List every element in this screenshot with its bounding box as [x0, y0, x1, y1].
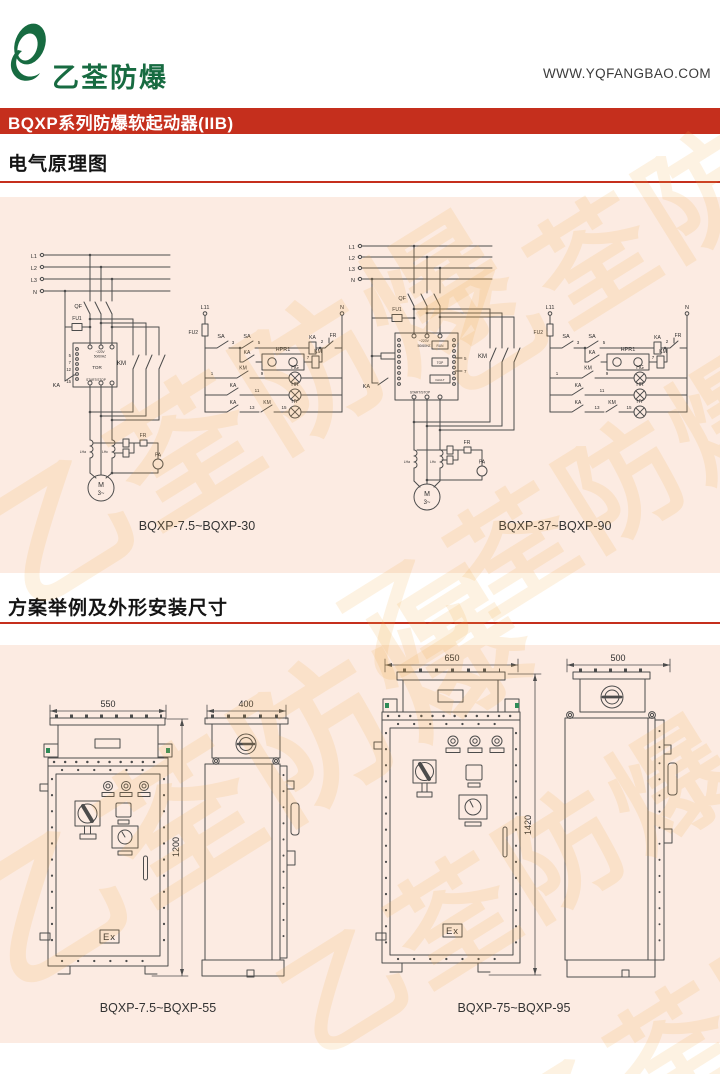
label-fr: FR [464, 440, 471, 446]
label-15: 15 [281, 405, 287, 410]
label-terminal-12: 12 [66, 367, 71, 372]
label-qf: QF [74, 304, 82, 310]
label-13: 13 [594, 405, 600, 410]
schematic-caption-small: BQXP-7.5~BQXP-30 [139, 519, 255, 533]
label-l11: L11 [201, 305, 210, 311]
label-freq: 50/60HZ [94, 355, 106, 359]
control-circuit-small: L11 N FU2 SA 3 SA 5 KA 2 FR KA HPR1 [189, 305, 344, 418]
control-circuit-large: L11 N FU2 SA 3 SA 5 KA 2 FR KA HPR1 [534, 305, 689, 418]
label-l11: L11 [546, 305, 555, 311]
label-km: KM [584, 366, 592, 372]
label-n: N [351, 278, 355, 284]
label-hpr1: HPR1 [621, 347, 636, 353]
label-volt: ~220V [95, 350, 105, 354]
label-l1: L1 [31, 254, 37, 260]
label-fu2: FU2 [534, 330, 544, 336]
dim-400: 400 [238, 699, 253, 709]
label-1: 1 [211, 371, 214, 376]
label-terminal-7: 7 [69, 360, 72, 365]
label-hr: HR [636, 382, 644, 388]
label-n: N [685, 305, 689, 311]
label-km: KM [263, 400, 271, 406]
label-fu1: FU1 [392, 307, 402, 313]
label-sa: SA [217, 334, 225, 340]
label-ka: KA [363, 384, 371, 390]
label-n: N [33, 290, 37, 296]
label-lha: LHa [80, 450, 86, 454]
label-hr: HR [291, 382, 299, 388]
ex-mark: Ex [103, 932, 116, 943]
cabinet-small-side-view: 400 [202, 699, 299, 977]
ex-mark: Ex [446, 926, 459, 937]
label-l1: L1 [349, 245, 355, 251]
label-motor: M [98, 482, 104, 489]
dim-550: 550 [100, 699, 115, 709]
schematic-caption-large: BQXP-37~BQXP-90 [499, 519, 612, 533]
label-km: KM [239, 366, 247, 372]
cabinet-large-front-view: 650 [374, 653, 541, 975]
label-11: 11 [600, 388, 605, 393]
label-ka: KA [309, 335, 316, 341]
label-hpr1: HPR1 [276, 347, 291, 353]
dim-650: 650 [444, 653, 459, 663]
section-divider-2 [0, 622, 720, 624]
label-qf: QF [398, 296, 406, 302]
label-hy: HY [292, 399, 300, 405]
label-km: KM [659, 349, 667, 355]
brand-name: 乙荃防爆 [52, 56, 168, 95]
label-2: 2 [666, 339, 669, 344]
label-7: 7 [652, 355, 655, 360]
label-lha: LHa [404, 460, 410, 464]
label-motor-phase: 3~ [98, 491, 105, 497]
label-5: 5 [603, 340, 606, 345]
label-5: 5 [464, 356, 467, 361]
dim-500: 500 [610, 653, 625, 663]
label-pa: PA [479, 460, 486, 466]
label-fr: FR [140, 433, 147, 439]
label-sa: SA [243, 334, 251, 340]
drawing-caption-small: BQXP-7.5~BQXP-55 [100, 1001, 216, 1015]
label-pa: PA [155, 453, 162, 459]
power-circuit-large: L1 L2 L3 N QF KM [349, 244, 520, 510]
label-lhc: LHc [430, 460, 436, 464]
label-ka: KA [230, 383, 237, 389]
label-top: TOP [437, 361, 444, 365]
label-1: 1 [556, 371, 559, 376]
label-l2: L2 [31, 266, 37, 272]
label-hg: HG [636, 365, 644, 371]
label-freq: 50/60HZ [417, 344, 430, 348]
label-lhc: LHc [102, 450, 108, 454]
label-ka: KA [575, 383, 582, 389]
catalog-page: 乙荃防爆 WWW.YQFANGBAO.COM BQXP系列防爆软起动器(IIB)… [0, 0, 720, 1074]
page-title: BQXP系列防爆软起动器(IIB) [0, 109, 234, 134]
label-motor: M [424, 491, 430, 498]
label-13: 13 [249, 405, 255, 410]
dim-1420: 1420 [523, 815, 533, 835]
label-start-stop: START/STOP [410, 391, 431, 395]
label-3: 3 [232, 340, 235, 345]
label-ka: KA [589, 350, 596, 356]
label-hy: HY [637, 399, 645, 405]
label-ka: KA [230, 400, 237, 406]
brand-logo-icon [8, 20, 48, 84]
cabinet-large-side-view: 500 [565, 653, 677, 977]
label-ka: KA [575, 400, 582, 406]
label-7: 7 [464, 369, 467, 374]
label-run: RUN [437, 344, 445, 348]
label-5: 5 [258, 340, 261, 345]
label-fault: FAULT [435, 378, 444, 382]
label-volt: ~220V [419, 339, 430, 343]
label-l2: L2 [349, 256, 355, 262]
label-ka: KA [244, 350, 251, 356]
label-fu2: FU2 [189, 330, 199, 336]
label-7: 7 [307, 355, 310, 360]
label-km: KM [608, 400, 616, 406]
label-motor-phase: 3~ [424, 500, 431, 506]
schematic-diagram: L1 L2 L3 N QF FU1 KA [0, 197, 720, 573]
label-km: KM [314, 349, 322, 355]
label-l3: L3 [349, 267, 355, 273]
label-fu1: FU1 [72, 316, 82, 322]
page-title-bar: BQXP系列防爆软起动器(IIB) [0, 108, 720, 134]
dim-1200: 1200 [171, 837, 181, 857]
power-circuit-small: L1 L2 L3 N QF FU1 KA [31, 253, 170, 501]
label-11: 11 [255, 388, 260, 393]
drawing-caption-large: BQXP-75~BQXP-95 [458, 1001, 571, 1015]
label-ka: KA [654, 335, 661, 341]
label-tor: TOR [92, 365, 102, 370]
dimension-drawings: 550 [0, 645, 720, 1043]
label-fr: FR [675, 333, 682, 339]
section-divider-1 [0, 181, 720, 183]
label-hg: HG [291, 365, 299, 371]
drawings-panel: 550 [0, 645, 720, 1043]
website-url: WWW.YQFANGBAO.COM [543, 66, 711, 81]
label-n: N [340, 305, 344, 311]
label-start-stop: START/STOP [86, 378, 106, 382]
cabinet-small-front-view: 550 [40, 699, 188, 976]
label-sa: SA [562, 334, 570, 340]
section-title-dimensions: 方案举例及外形安装尺寸 [8, 593, 228, 620]
label-9: 9 [606, 371, 609, 376]
schematic-panel: L1 L2 L3 N QF FU1 KA [0, 197, 720, 573]
label-sa: SA [588, 334, 596, 340]
label-fr: FR [330, 333, 337, 339]
label-km: KM [117, 361, 126, 367]
label-3: 3 [577, 340, 580, 345]
label-ka: KA [53, 383, 61, 389]
label-15: 15 [626, 405, 632, 410]
label-2: 2 [321, 339, 324, 344]
label-km: KM [478, 354, 487, 360]
section-title-schematic: 电气原理图 [8, 149, 108, 176]
label-l3: L3 [31, 278, 37, 284]
label-terminal-5: 5 [69, 353, 72, 358]
label-terminal-15: 15 [66, 379, 71, 384]
label-9: 9 [261, 371, 264, 376]
